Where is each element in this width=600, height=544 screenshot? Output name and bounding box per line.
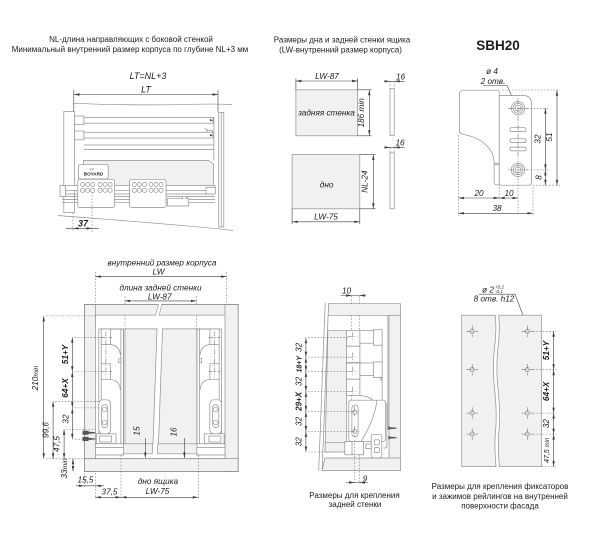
svg-text:ø 2: ø 2 bbox=[482, 285, 494, 294]
svg-text:32: 32 bbox=[295, 437, 304, 447]
svg-text:20: 20 bbox=[473, 189, 484, 198]
svg-text:LW-87: LW-87 bbox=[148, 292, 172, 301]
svg-text:15: 15 bbox=[133, 426, 142, 436]
svg-text:18+Y: 18+Y bbox=[297, 355, 304, 373]
svg-text:внутренний размер корпуса: внутренний размер корпуса bbox=[108, 259, 217, 268]
svg-text:37: 37 bbox=[78, 219, 89, 229]
svg-text:47,5: 47,5 bbox=[53, 436, 62, 452]
svg-text:8 отв. h12: 8 отв. h12 bbox=[474, 294, 515, 303]
svg-text:16: 16 bbox=[170, 427, 179, 437]
svg-text:Минимальный внутренний размер: Минимальный внутренний размер корпуса по… bbox=[12, 45, 249, 54]
svg-text:32: 32 bbox=[295, 376, 304, 386]
svg-text:32: 32 bbox=[295, 416, 304, 426]
svg-text:2 отв.: 2 отв. bbox=[480, 77, 506, 86]
svg-text:®™: ®™ bbox=[90, 168, 95, 172]
svg-text:ø 4: ø 4 bbox=[486, 67, 498, 76]
svg-text:-0,1: -0,1 bbox=[495, 289, 503, 294]
svg-text:LT: LT bbox=[141, 85, 152, 95]
svg-text:и зажимов рейлингов на внутрен: и зажимов рейлингов на внутренней bbox=[432, 492, 568, 501]
svg-text:51+Y: 51+Y bbox=[542, 339, 551, 360]
svg-text:186 min: 186 min bbox=[357, 98, 366, 128]
svg-text:37,5: 37,5 bbox=[102, 487, 118, 496]
svg-text:задней стенки: задней стенки bbox=[329, 500, 382, 509]
svg-text:64+X: 64+X bbox=[542, 381, 551, 401]
svg-text:51+Y: 51+Y bbox=[61, 343, 70, 364]
svg-text:32: 32 bbox=[542, 419, 551, 429]
svg-text:51: 51 bbox=[545, 132, 554, 141]
svg-text:LW-75: LW-75 bbox=[146, 487, 170, 496]
svg-text:47,5 min: 47,5 min bbox=[544, 437, 551, 463]
svg-text:99,6: 99,6 bbox=[42, 422, 51, 438]
svg-text:BOYARD: BOYARD bbox=[84, 172, 104, 177]
svg-text:16: 16 bbox=[395, 138, 405, 147]
svg-text:8: 8 bbox=[535, 175, 544, 180]
svg-text:NL-длина направляющих с боково: NL-длина направляющих с боковой стенкой bbox=[49, 35, 213, 44]
svg-text:длина задней стенки: длина задней стенки bbox=[119, 284, 202, 293]
svg-text:29+X: 29+X bbox=[295, 391, 304, 412]
svg-text:32: 32 bbox=[61, 414, 70, 424]
svg-text:дно ящика: дно ящика bbox=[138, 477, 179, 486]
svg-text:Размеры дна и задней стенки ящ: Размеры дна и задней стенки ящика bbox=[274, 36, 411, 45]
svg-text:LW-75: LW-75 bbox=[314, 212, 338, 221]
svg-text:33min: 33min bbox=[60, 458, 69, 478]
svg-text:9: 9 bbox=[363, 474, 368, 483]
svg-text:10: 10 bbox=[504, 189, 514, 198]
svg-text:Размеры для крепления фиксатор: Размеры для крепления фиксаторов bbox=[432, 482, 569, 491]
svg-text:32: 32 bbox=[295, 342, 304, 352]
svg-text:Размеры для крепления: Размеры для крепления bbox=[309, 491, 399, 500]
svg-text:LW: LW bbox=[153, 268, 166, 277]
svg-text:16: 16 bbox=[396, 72, 406, 81]
svg-text:32: 32 bbox=[534, 134, 543, 144]
svg-text:LW-87: LW-87 bbox=[315, 72, 339, 81]
svg-text:(LW-внутренний размер корпуса): (LW-внутренний размер корпуса) bbox=[279, 46, 402, 55]
svg-text:SBH20: SBH20 bbox=[476, 38, 520, 53]
svg-text:дно: дно bbox=[320, 181, 334, 190]
svg-text:10: 10 bbox=[342, 287, 352, 296]
svg-text:NL-24: NL-24 bbox=[361, 170, 370, 193]
svg-text:210min: 210min bbox=[31, 365, 40, 391]
svg-text:LT=NL+3: LT=NL+3 bbox=[130, 71, 167, 81]
svg-text:64+X: 64+X bbox=[61, 378, 70, 398]
svg-text:задняя стенка: задняя стенка bbox=[297, 109, 355, 118]
svg-text:поверхности фасада: поверхности фасада bbox=[461, 501, 539, 510]
svg-text:38: 38 bbox=[492, 204, 502, 213]
svg-text:15,5: 15,5 bbox=[78, 476, 94, 485]
